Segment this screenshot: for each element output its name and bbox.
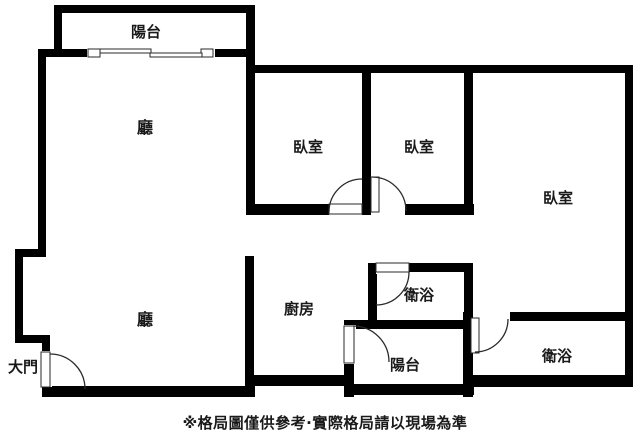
label-entrance: 大門	[8, 358, 38, 376]
label-balcony-bottom: 陽台	[390, 356, 420, 374]
bathroom-2-door-leaf-icon	[471, 318, 479, 353]
wall-bed3-left-upper	[464, 65, 473, 215]
wall-bath2-bottom	[463, 375, 633, 387]
disclaimer-caption: ※格局圖僅供參考·實際格局請以現場為準	[183, 414, 468, 432]
floor-plan: 陽台 廳 臥室 臥室 臥室 廳 廚房 衛浴 陽台 衛浴 大門 ※格局圖僅供參考·…	[0, 0, 640, 438]
wall-bedrooms-top	[246, 65, 633, 73]
label-bathroom-2: 衛浴	[541, 347, 573, 365]
label-bedroom-3: 臥室	[543, 189, 573, 207]
wall-balcony-top	[54, 5, 255, 13]
wall-kitchen-bottom	[246, 375, 352, 386]
sliding-door-cap-right-icon	[201, 49, 213, 57]
label-balcony-top: 陽台	[131, 23, 161, 41]
label-bathroom-1: 衛浴	[403, 286, 435, 304]
sliding-door-panel-upper-icon	[100, 49, 151, 53]
bathroom-1-door-leaf-icon	[376, 263, 409, 272]
label-bedroom-1: 臥室	[293, 138, 323, 156]
wall-notch-left	[15, 249, 23, 343]
bedroom-2-door-leaf-icon	[371, 177, 379, 212]
wall-living-kitchen-divider	[245, 256, 254, 387]
label-bedroom-2: 臥室	[404, 138, 434, 156]
entrance-door-leaf-icon	[41, 352, 50, 387]
label-kitchen: 廚房	[284, 300, 314, 318]
wall-bed1-bed2-divider	[362, 65, 371, 215]
label-living-lower: 廳	[137, 310, 153, 329]
sliding-door-panel-lower-icon	[150, 53, 202, 57]
balcony-bottom-door-leaf-icon	[344, 326, 354, 363]
wall-living-left-upper	[38, 49, 46, 257]
floor-plan-canvas: 陽台 廳 臥室 臥室 臥室 廳 廚房 衛浴 陽台 衛浴 大門 ※格局圖僅供參考·…	[0, 0, 640, 438]
wall-living-bed1-divider	[246, 49, 255, 215]
sliding-door-cap-left-icon	[88, 49, 100, 57]
wall-living-bottom	[42, 386, 255, 397]
wall-outer-right	[625, 65, 633, 387]
bedroom-1-door-leaf-icon	[329, 204, 362, 214]
wall-balcony2-bottom	[344, 384, 474, 395]
label-living-upper: 廳	[137, 118, 153, 137]
